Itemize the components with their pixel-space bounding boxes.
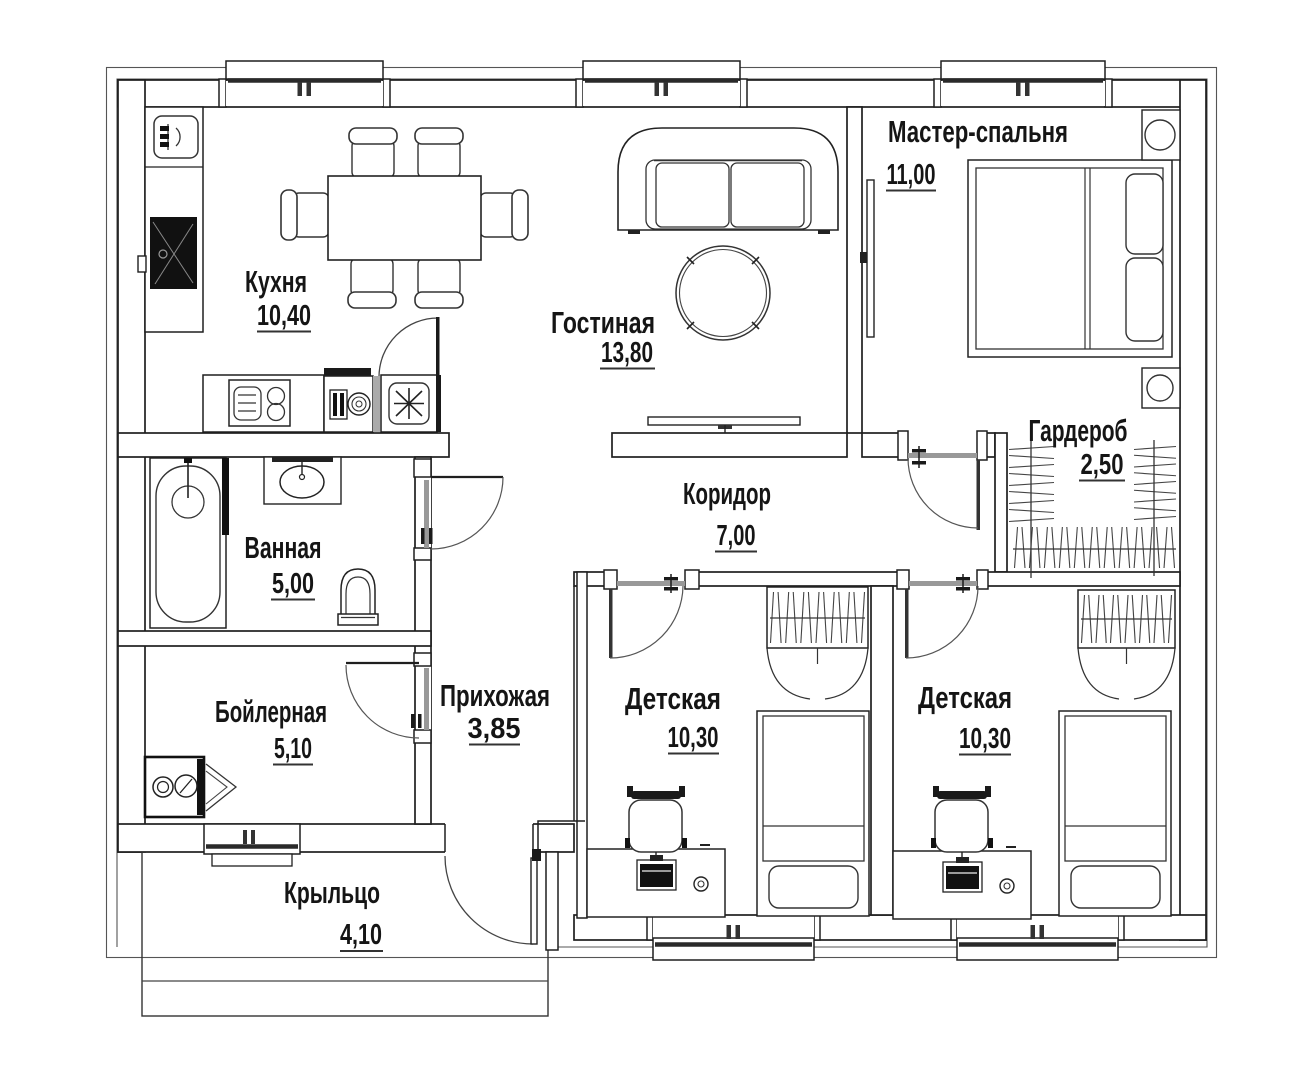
svg-text:10,40: 10,40 <box>257 300 311 332</box>
svg-text:3,85: 3,85 <box>468 713 521 745</box>
svg-text:Коридор: Коридор <box>683 476 771 511</box>
svg-text:Гардероб: Гардероб <box>1029 413 1128 448</box>
svg-text:Ванная: Ванная <box>245 530 322 565</box>
svg-text:7,00: 7,00 <box>717 520 756 552</box>
svg-text:Детская: Детская <box>918 680 1012 715</box>
svg-text:Мастер-спальня: Мастер-спальня <box>888 114 1068 149</box>
svg-text:10,30: 10,30 <box>959 723 1011 755</box>
svg-text:5,00: 5,00 <box>272 568 314 600</box>
svg-text:Детская: Детская <box>625 681 721 716</box>
svg-text:Гостиная: Гостиная <box>551 305 655 340</box>
svg-text:5,10: 5,10 <box>274 733 312 765</box>
svg-text:11,00: 11,00 <box>887 159 936 191</box>
svg-text:13,80: 13,80 <box>601 337 653 369</box>
svg-text:4,10: 4,10 <box>340 919 382 951</box>
svg-text:10,30: 10,30 <box>668 722 719 754</box>
svg-text:Бойлерная: Бойлерная <box>215 694 327 729</box>
svg-text:Прихожая: Прихожая <box>440 678 550 713</box>
svg-text:Крыльцо: Крыльцо <box>284 875 380 910</box>
svg-text:Кухня: Кухня <box>245 264 307 299</box>
svg-text:2,50: 2,50 <box>1081 449 1124 481</box>
